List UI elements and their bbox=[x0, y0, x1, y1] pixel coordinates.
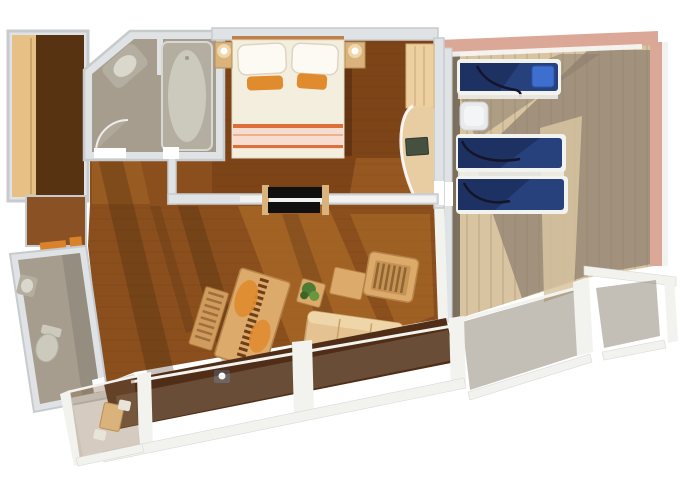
floor-plan-rendering bbox=[0, 0, 680, 486]
bathtub-basin bbox=[168, 50, 206, 142]
private-veranda bbox=[438, 31, 678, 400]
floor-plan-canvas bbox=[0, 0, 680, 486]
veranda-side-table bbox=[460, 102, 488, 130]
door-cap-right bbox=[322, 185, 329, 215]
bathtub bbox=[162, 42, 212, 150]
railing-post bbox=[292, 340, 314, 416]
closet-body bbox=[406, 44, 434, 108]
sun-lounger-2 bbox=[456, 134, 566, 172]
bedside-lamp-icon bbox=[352, 48, 359, 55]
towel bbox=[532, 66, 554, 87]
bathtub-drain bbox=[185, 56, 189, 60]
threshold-right bbox=[69, 236, 82, 246]
double-bed bbox=[232, 36, 344, 158]
veranda-right-wall bbox=[650, 42, 662, 266]
wardrobe bbox=[12, 35, 36, 197]
pillow-right bbox=[291, 43, 339, 75]
nightstand-right bbox=[345, 42, 365, 68]
bathroom-doorway-tab bbox=[163, 147, 179, 159]
closet bbox=[406, 44, 434, 108]
entry-hall bbox=[8, 31, 88, 252]
nightstand-left bbox=[215, 42, 232, 68]
sun-lounger-1 bbox=[457, 59, 561, 97]
door-opening bbox=[94, 148, 126, 158]
armchair bbox=[363, 251, 420, 303]
pillow-left bbox=[237, 43, 287, 75]
railing-glass-panel bbox=[596, 280, 660, 348]
railing-post bbox=[664, 277, 678, 343]
entry-floor bbox=[36, 35, 84, 197]
runner-stripe-top bbox=[233, 124, 343, 128]
side-table-inner bbox=[464, 106, 484, 126]
veranda-right-wall-outer bbox=[662, 42, 668, 266]
door-cap-left bbox=[262, 185, 269, 215]
tv-screen bbox=[405, 137, 428, 155]
accent-pillow-right bbox=[296, 73, 327, 90]
sliding-door-panel bbox=[268, 187, 322, 198]
bathroom bbox=[84, 31, 224, 160]
sun-lounger-3 bbox=[456, 176, 568, 214]
runner-stripe-bottom bbox=[233, 145, 343, 148]
railing-post bbox=[137, 372, 153, 448]
lounger-crossbar bbox=[458, 94, 558, 99]
runner-stripe-mid bbox=[233, 134, 343, 136]
accent-pillow-left bbox=[247, 75, 283, 90]
bedside-lamp-icon bbox=[221, 48, 228, 55]
sliding-door-panel bbox=[268, 202, 320, 213]
